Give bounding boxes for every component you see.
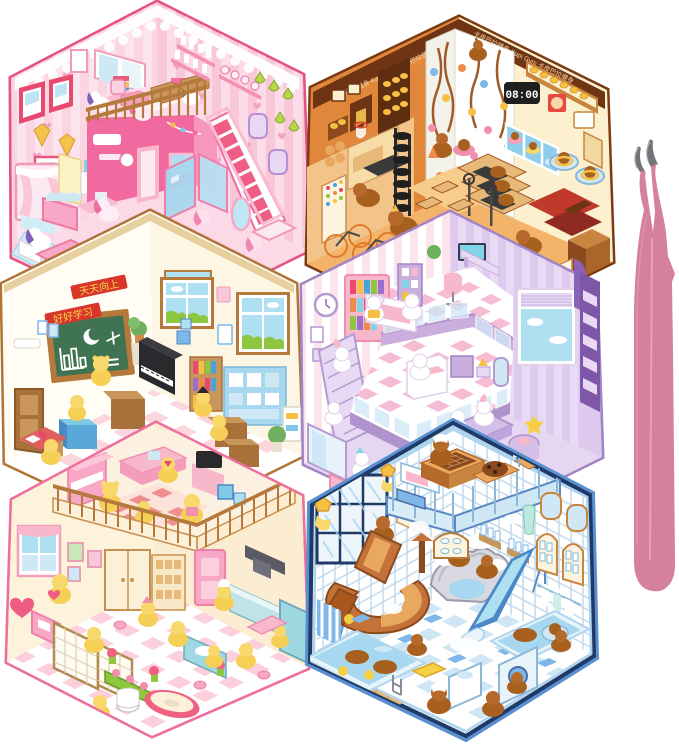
svg-text:08:00: 08:00 xyxy=(505,90,538,102)
